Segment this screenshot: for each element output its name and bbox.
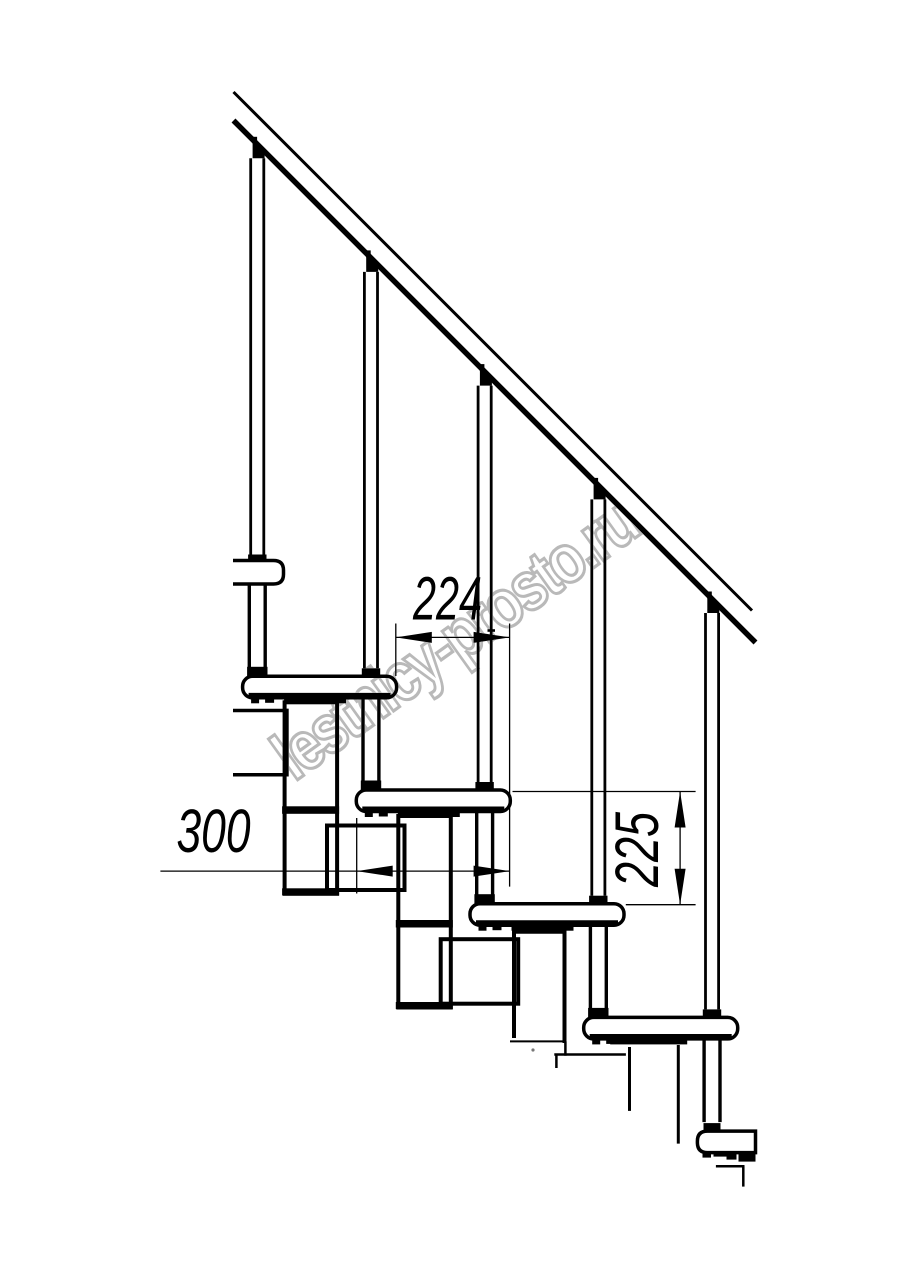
svg-text:225: 225 xyxy=(603,811,671,888)
svg-text:300: 300 xyxy=(177,797,251,865)
